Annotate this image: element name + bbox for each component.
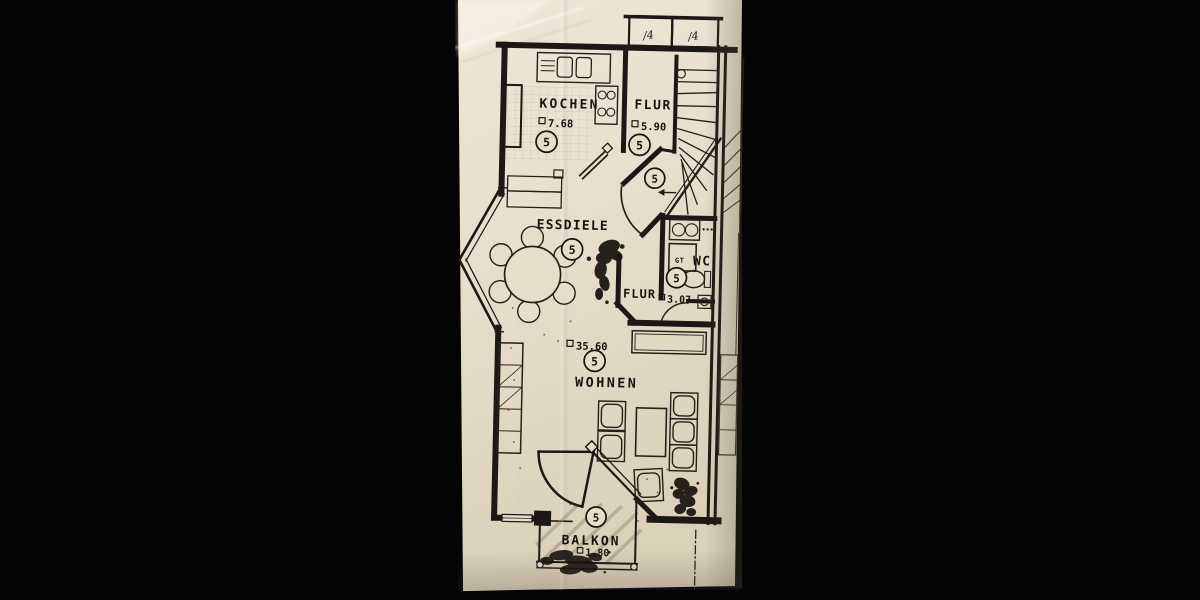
unit-marker-wohnen: 5 [584, 350, 605, 371]
unit-marker-flur: 5 [629, 134, 650, 155]
unit-marker-wc: 5 [666, 268, 686, 288]
dining-chair [517, 300, 539, 322]
room-label-essdiele: ESSDIELE [537, 218, 610, 235]
svg-text:3.07: 3.07 [667, 295, 691, 307]
svg-text:5: 5 [543, 135, 550, 149]
room-label-flur: FLUR [634, 98, 672, 114]
gas-heater-label: GT [675, 257, 685, 265]
unit-marker-balkon: 5 [586, 507, 606, 527]
svg-text:5: 5 [636, 138, 643, 152]
paper-bottom-shading [458, 550, 742, 590]
paper-edge-shading [705, 0, 742, 588]
floor-plan-svg: /4 /4 [455, 0, 757, 600]
roof-mark: /4 [641, 28, 654, 42]
dining-table [504, 246, 561, 303]
window [502, 514, 532, 522]
svg-text:5.90: 5.90 [641, 121, 667, 134]
svg-text:5: 5 [673, 272, 680, 285]
roof-mark: /4 [686, 29, 699, 43]
room-label-wohnen: WOHNEN [575, 374, 639, 391]
room-label-kochen: KOCHEN [539, 97, 599, 113]
room-label-flur2: FLUR [623, 287, 656, 302]
unit-marker-kochen: 5 [536, 131, 557, 152]
svg-text:5: 5 [593, 511, 600, 524]
unit-marker-stairs: 5 [645, 168, 665, 188]
screenshot-canvas: { "meta": {"type": "scanned architectura… [0, 0, 1200, 600]
svg-text:7.68: 7.68 [548, 118, 574, 131]
unit-marker-essdiele: 5 [561, 239, 582, 260]
svg-text:5: 5 [569, 243, 576, 257]
svg-text:5: 5 [591, 354, 598, 368]
svg-text:5: 5 [651, 173, 658, 186]
